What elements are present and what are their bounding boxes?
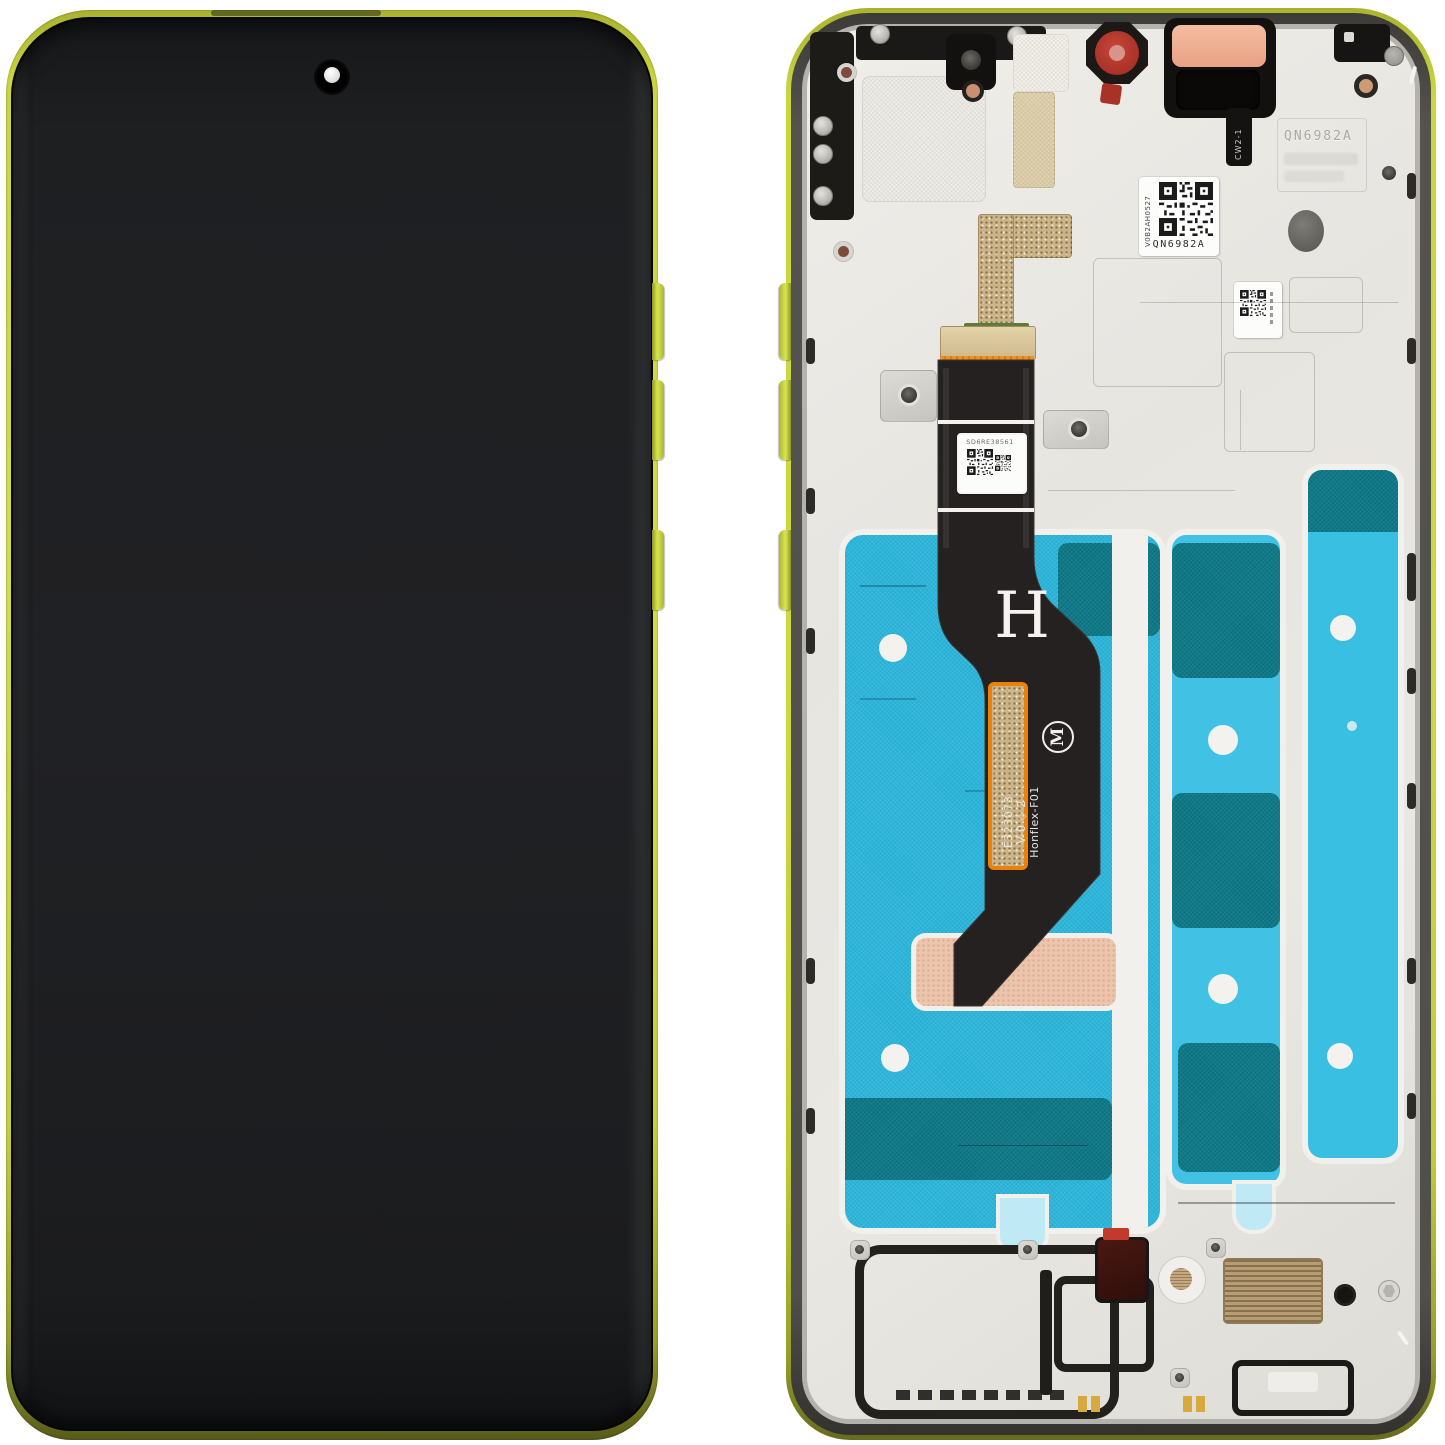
screw-hole [855, 1245, 864, 1254]
screw-hole [1175, 1373, 1184, 1382]
motorola-logo-icon: M [1042, 721, 1074, 753]
flex-letter-marking: H [986, 574, 1058, 658]
vibration-motor-tab [1103, 1228, 1129, 1240]
punch-hole-camera-lens [324, 67, 340, 83]
hex-bolt-head [1383, 1285, 1395, 1297]
hex-bolt [1378, 1280, 1400, 1302]
motorola-logo-m: M [1048, 728, 1068, 747]
gold-contact-pair [1078, 1396, 1100, 1412]
bottom-right-bracket-slot [1268, 1372, 1318, 1392]
gold-contact-pair [1183, 1396, 1205, 1412]
vibration-motor [1095, 1237, 1149, 1303]
flex-part-markings: E323073 V-0 ◇ 2 Honflex-F01 [1002, 774, 1044, 870]
top-antenna-line [211, 10, 381, 16]
qr-code-flex-2 [995, 455, 1011, 471]
screw-hole [1211, 1243, 1220, 1252]
flex-white-line [938, 420, 1034, 424]
screw-hole [1023, 1245, 1032, 1254]
speaker-coil-mesh [1223, 1258, 1323, 1324]
phone-back-view: CW2-1 QN6982A V0B2AH0527 QN6982A [786, 8, 1436, 1440]
screw-black [1334, 1284, 1356, 1306]
volume-down-button [652, 380, 664, 460]
power-button [652, 530, 664, 610]
flex-label-code: SD6RE38561 [959, 438, 1021, 446]
flex-white-line [938, 508, 1034, 512]
flex-qr-label: SD6RE38561 [957, 433, 1027, 494]
center-bracket-bar [1040, 1270, 1052, 1395]
flex-part-line1: E323073 [1002, 774, 1015, 870]
mic-gold-mesh [1170, 1268, 1192, 1290]
phone-front-view [6, 10, 658, 1440]
front-screen-off [11, 17, 653, 1431]
flex-part-line2: V-0 ◇ 2 [1015, 774, 1028, 870]
volume-up-button [652, 283, 664, 360]
main-flex-cable [786, 8, 1436, 1440]
qr-code-flex [967, 449, 993, 475]
flex-part-line3: Honflex-F01 [1028, 774, 1041, 870]
